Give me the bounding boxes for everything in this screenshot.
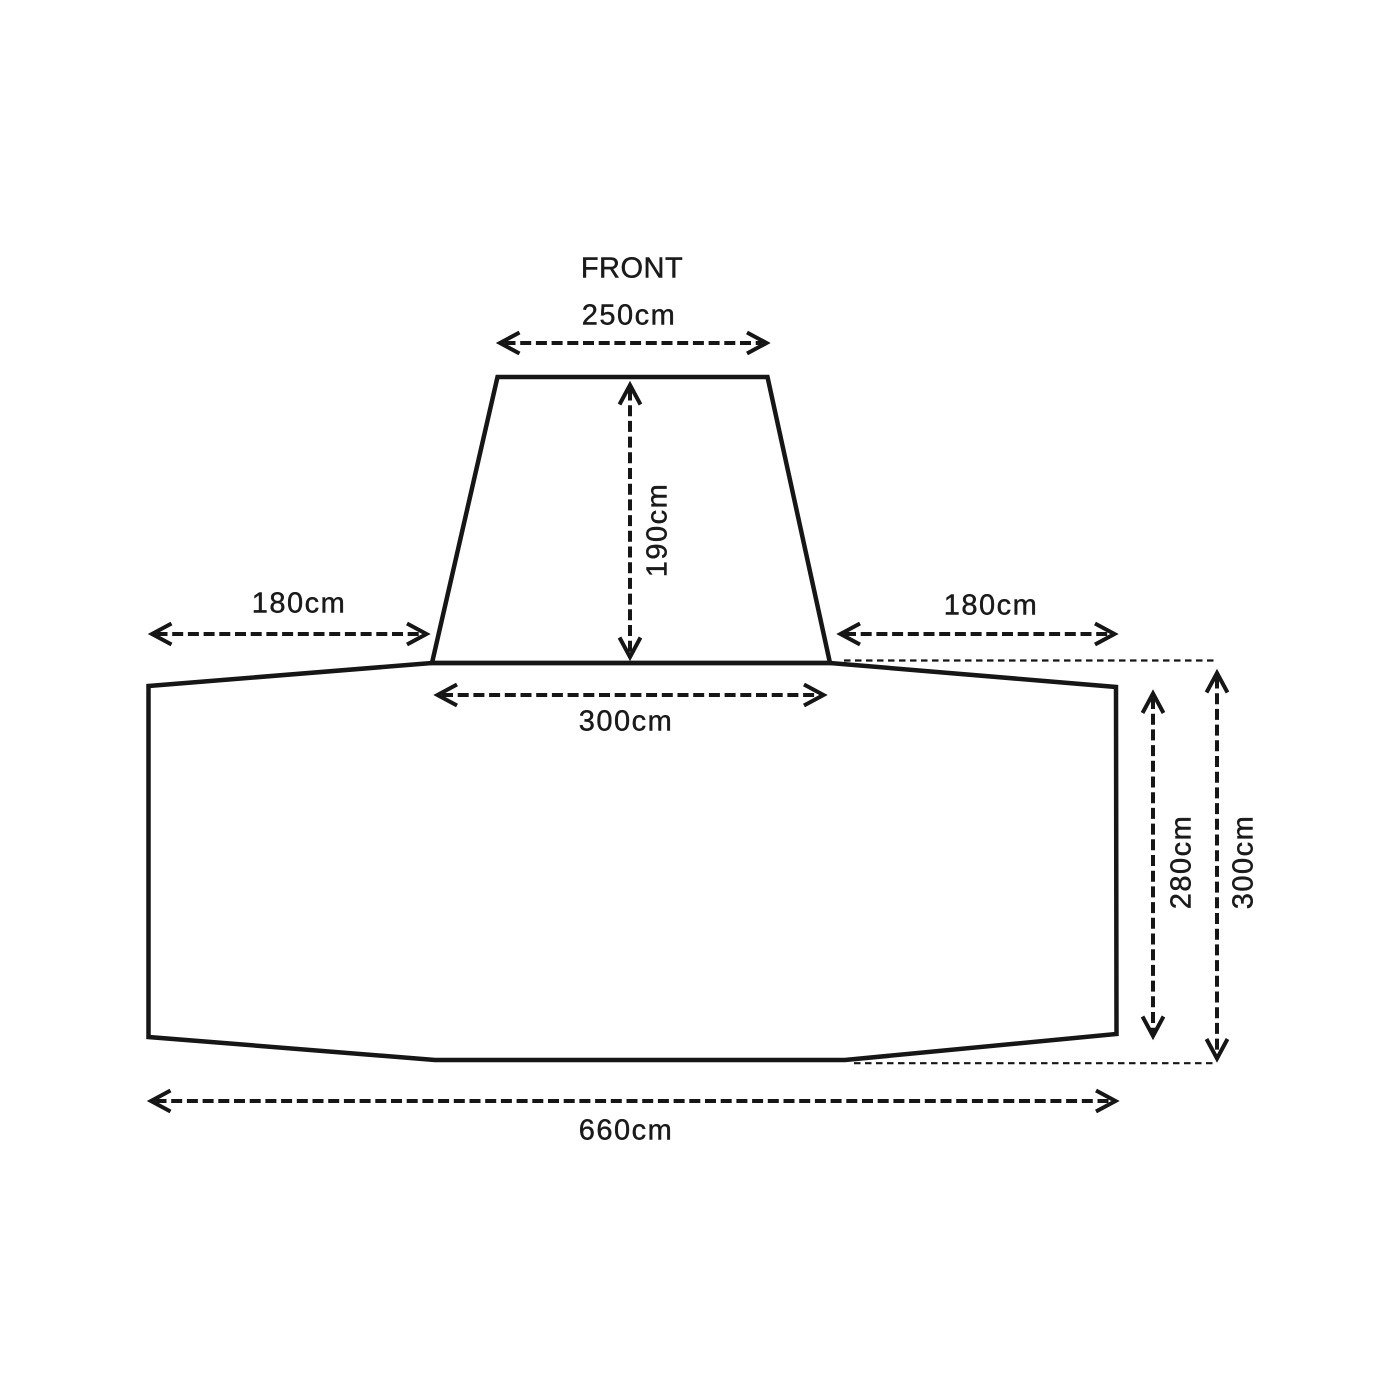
svg-text:660cm: 660cm bbox=[579, 1115, 674, 1147]
svg-text:190cm: 190cm bbox=[642, 483, 674, 578]
svg-text:FRONT: FRONT bbox=[581, 253, 683, 285]
svg-text:300cm: 300cm bbox=[1228, 815, 1260, 910]
svg-text:280cm: 280cm bbox=[1166, 815, 1198, 910]
svg-text:300cm: 300cm bbox=[579, 706, 674, 738]
svg-text:180cm: 180cm bbox=[252, 588, 347, 620]
svg-text:180cm: 180cm bbox=[944, 590, 1039, 622]
svg-text:250cm: 250cm bbox=[582, 300, 677, 332]
